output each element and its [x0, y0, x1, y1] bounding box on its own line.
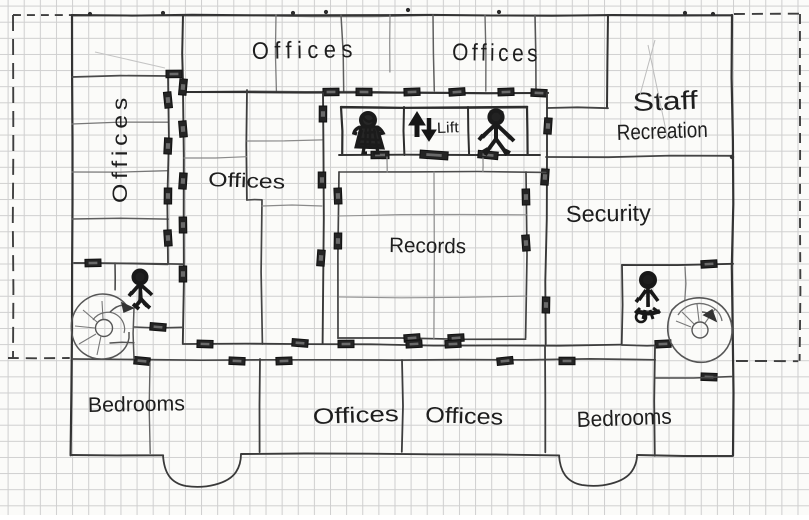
svg-text:Offices: Offices — [252, 36, 358, 65]
svg-text:Offices: Offices — [208, 169, 286, 194]
svg-text:Offices: Offices — [452, 39, 541, 68]
svg-text:Records: Records — [389, 234, 466, 258]
svg-text:Offices: Offices — [312, 401, 399, 429]
svg-text:Bedrooms: Bedrooms — [576, 404, 672, 432]
svg-text:Recreation: Recreation — [616, 117, 708, 145]
svg-text:Staff: Staff — [632, 85, 699, 117]
svg-text:Lift: Lift — [437, 119, 460, 137]
svg-text:Offices: Offices — [109, 93, 132, 203]
svg-text:Offices: Offices — [425, 402, 504, 430]
svg-text:Security: Security — [566, 200, 652, 227]
svg-text:Bedrooms: Bedrooms — [88, 392, 185, 417]
